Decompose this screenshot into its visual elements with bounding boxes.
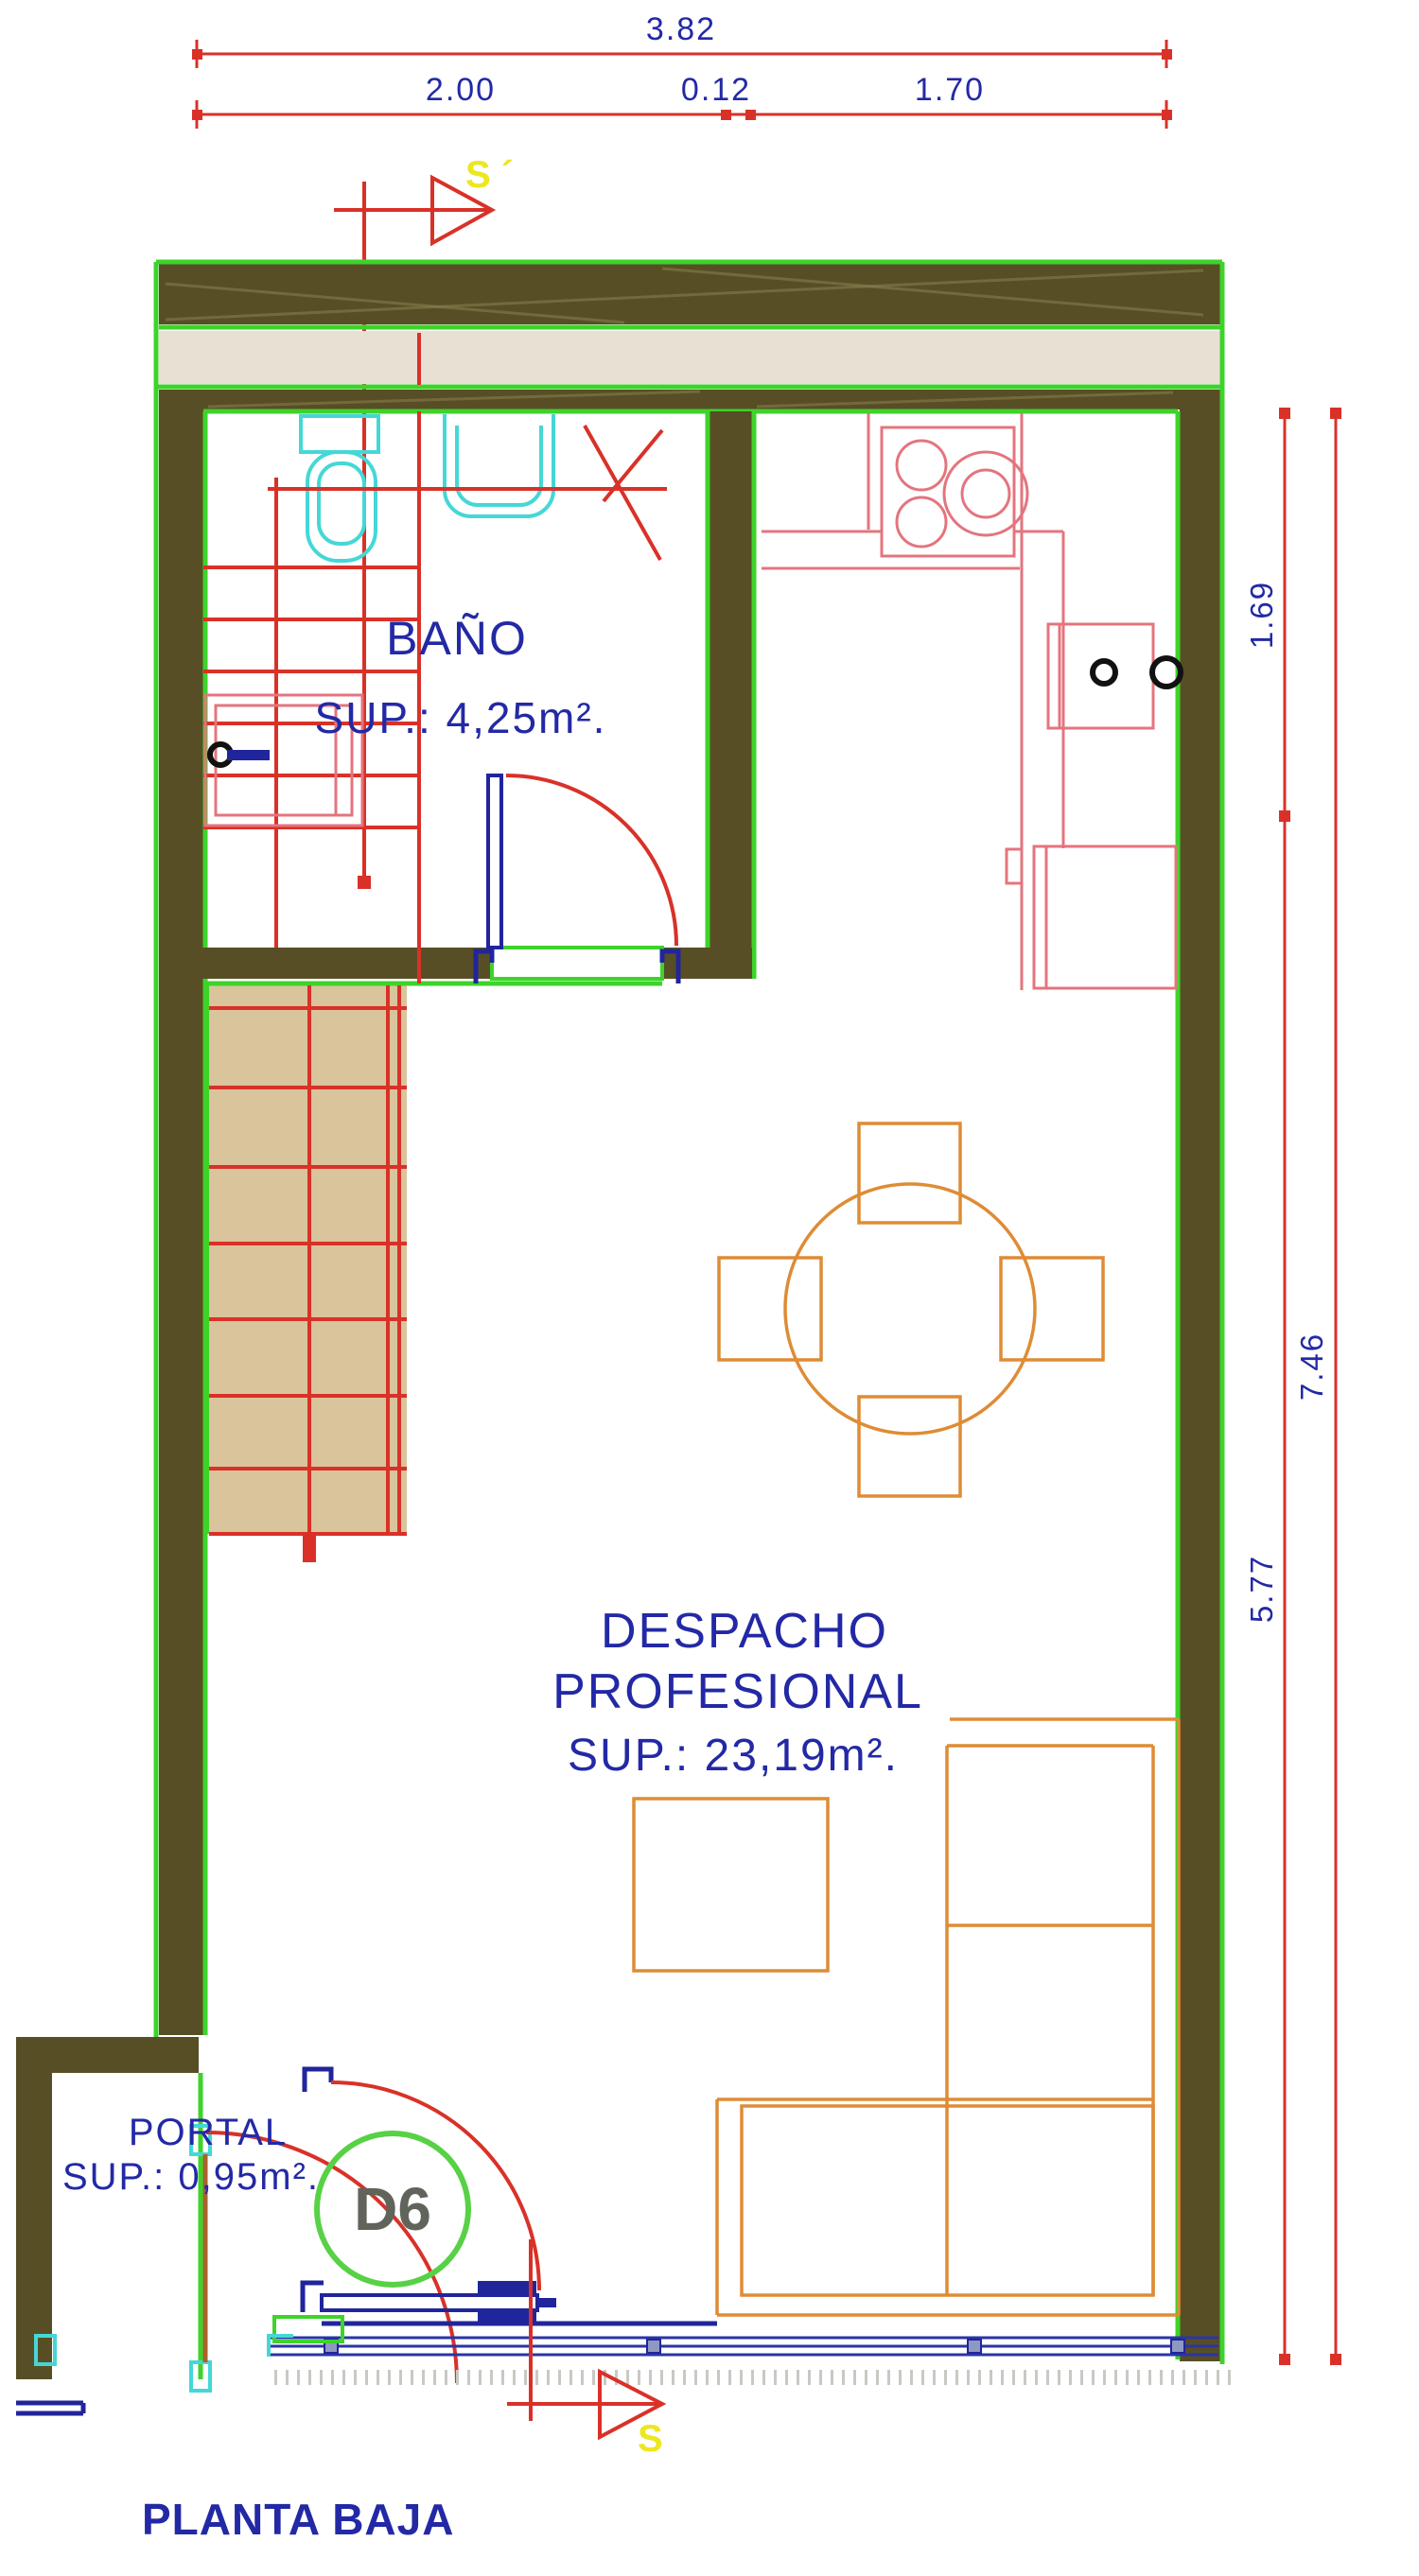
mullion: [647, 2340, 660, 2353]
top-dimension-overall: 3.82: [192, 11, 1172, 68]
chair: [1001, 1258, 1103, 1360]
mullion: [968, 2340, 981, 2353]
cabinet-handle-icon: [1093, 661, 1115, 684]
stove-burner: [897, 497, 946, 547]
kitchen: [762, 413, 1181, 990]
dimension-tick: [1279, 2354, 1290, 2365]
floor-plan-canvas: 3.82 2.00 0.12 1.70 S ´: [0, 0, 1419, 2576]
faucet-handle-icon: [227, 750, 270, 760]
right-dimensions: 1.69 7.46 5.77: [1244, 408, 1341, 2365]
dimension-label: 0.12: [681, 72, 751, 108]
dimension-label: 2.00: [426, 72, 496, 108]
sink: [445, 414, 553, 516]
facade-band-light: [159, 331, 1220, 384]
dining-set: [719, 1123, 1103, 1496]
room-name-bathroom: BAÑO: [386, 612, 528, 665]
staircase: [203, 983, 662, 1562]
dimension-tick: [1279, 408, 1290, 419]
dimension-tick: [745, 110, 756, 120]
room-name-office-2: PROFESIONAL: [552, 1664, 923, 1719]
dimension-tick: [1330, 408, 1341, 419]
plan-title: PLANTA BAJA: [142, 2495, 454, 2544]
door-threshold: [492, 948, 662, 979]
stove-burner: [897, 441, 946, 490]
kitchen-base-unit: [1034, 846, 1176, 988]
section-marker-bottom: S: [507, 2239, 663, 2460]
dimension-label: 1.70: [915, 72, 985, 108]
stove-burner: [962, 470, 1009, 517]
sliding-door-handle-icon: [478, 2281, 536, 2293]
room-name-office: DESPACHO: [601, 1604, 888, 1659]
dimension-label: 5.77: [1244, 1555, 1279, 1623]
sliding-door-handle-icon: [535, 2298, 556, 2307]
wall-portal-top: [16, 2037, 199, 2073]
dimension-label: 1.69: [1244, 581, 1279, 649]
dimension-tick: [1330, 2354, 1341, 2365]
section-line-end: [358, 876, 371, 889]
dimension-tick: [721, 110, 731, 120]
dimension-tick: [192, 110, 202, 120]
toilet-cistern: [301, 416, 378, 452]
wall-bathroom-bottom: [159, 948, 492, 979]
room-area-office: SUP.: 23,19m².: [568, 1731, 899, 1781]
section-label: S: [638, 2418, 663, 2460]
toilet-bowl-inner: [319, 463, 364, 544]
wall-left: [159, 390, 203, 2035]
top-dimension-segments: 2.00 0.12 1.70: [192, 72, 1172, 129]
section-label: S ´: [465, 154, 514, 196]
door-badge-label: D6: [354, 2175, 431, 2243]
room-area-bathroom: SUP.: 4,25m².: [315, 693, 607, 742]
floor-plan-drawing: 3.82 2.00 0.12 1.70 S ´: [0, 0, 1419, 2576]
dimension-tick: [1279, 810, 1290, 822]
sink-basin: [457, 426, 541, 505]
dimension-tick: [192, 49, 202, 60]
stair-direction-tick: [303, 1534, 316, 1562]
door-jamb: [305, 2069, 331, 2092]
wall-divider: [709, 411, 752, 979]
door-leaf: [488, 775, 501, 948]
cabinet-handle-icon: [1097, 668, 1173, 677]
coffee-table: [634, 1799, 828, 1971]
door-badge: D6: [317, 2133, 468, 2285]
kitchen-fitting: [1007, 849, 1022, 883]
wall-portal-left: [16, 2073, 52, 2379]
office-furniture: [634, 1719, 1179, 2315]
exterior-walls: [16, 262, 1223, 2379]
dimension-label: 7.46: [1294, 1332, 1329, 1401]
door-swing-arc: [506, 775, 676, 946]
chair: [859, 1123, 960, 1223]
dimension-tick: [1162, 49, 1172, 60]
room-area-portal: SUP.: 0,95m².: [62, 2156, 320, 2198]
wall-right: [1180, 390, 1220, 2361]
dimension-label: 3.82: [646, 11, 716, 47]
dimension-tick: [1162, 110, 1172, 120]
chair: [719, 1258, 821, 1360]
mullion: [1171, 2340, 1184, 2353]
chair: [859, 1397, 960, 1496]
room-name-portal: PORTAL: [129, 2112, 288, 2153]
bathroom-door: [476, 775, 678, 983]
sliding-door-leaf: [322, 2295, 537, 2310]
